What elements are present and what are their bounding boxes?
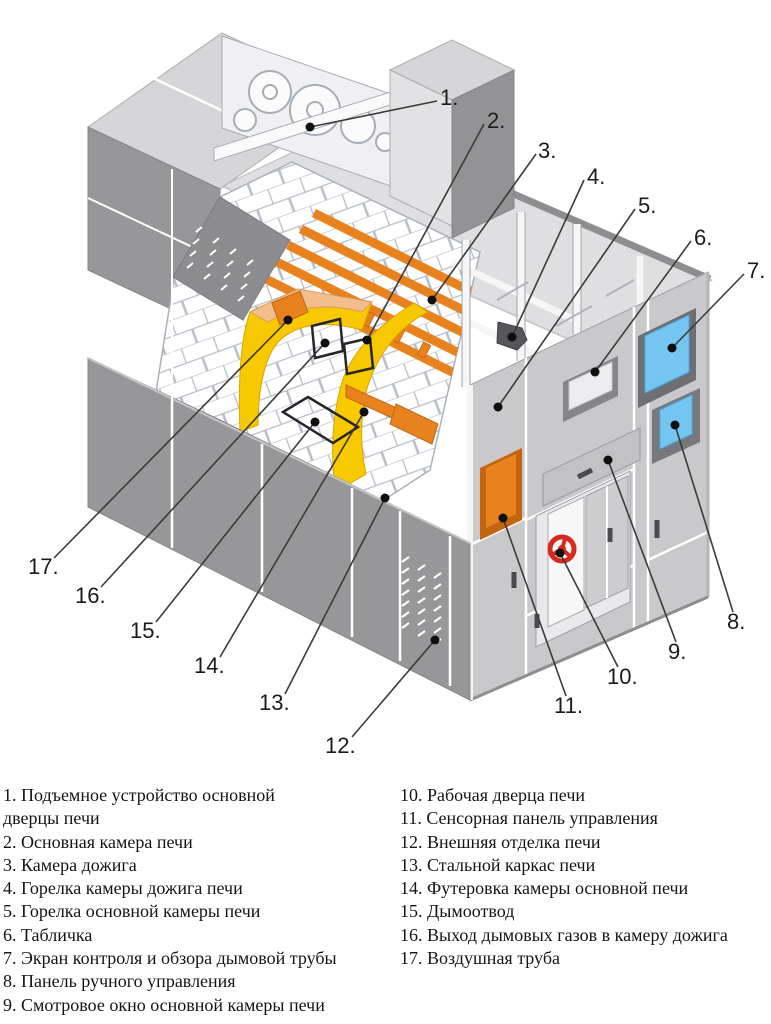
legend-item-2: 2. Основная камера печи xyxy=(3,831,400,854)
callout-number-14: 14. xyxy=(194,653,225,678)
callout-dot-16 xyxy=(321,339,330,348)
legend-item-8: 8. Панель ручного управления xyxy=(3,970,400,993)
legend: 1. Подъемное устройство основной дверцы … xyxy=(3,784,768,1017)
callout-number-3: 3. xyxy=(538,138,556,163)
callout-number-10: 10. xyxy=(607,664,638,689)
callout-dot-1 xyxy=(306,123,315,132)
callout-dot-13 xyxy=(381,494,390,503)
legend-item-10: 10. Рабочая дверца печи xyxy=(400,784,768,807)
legend-item-16: 16. Выход дымовых газов в камеру дожига xyxy=(400,924,768,947)
callout-number-17: 17. xyxy=(28,554,59,579)
callout-dot-4 xyxy=(508,333,517,342)
legend-item-17: 17. Воздушная труба xyxy=(400,947,768,970)
callout-number-9: 9. xyxy=(668,639,686,664)
legend-item-13: 13. Стальной каркас печи xyxy=(400,854,768,877)
callout-dot-12 xyxy=(431,636,440,645)
callout-dot-10 xyxy=(556,549,565,558)
legend-item-9: 9. Смотровое окно основной камеры печи xyxy=(3,994,400,1017)
legend-column-1: 1. Подъемное устройство основной дверцы … xyxy=(3,784,400,1017)
furnace-diagram-page: 1.2.3.4.5.6.7.8.9.10.11.12.13.14.15.16.1… xyxy=(0,0,771,1024)
callout-number-13: 13. xyxy=(259,690,290,715)
callout-dot-11 xyxy=(499,514,508,523)
callout-dot-3 xyxy=(428,296,437,305)
legend-item-7: 7. Экран контроля и обзора дымовой трубы xyxy=(3,947,400,970)
callout-dot-5 xyxy=(494,403,503,412)
legend-item-5: 5. Горелка основной камеры печи xyxy=(3,900,400,923)
callout-dot-14 xyxy=(360,408,369,417)
legend-item-12: 12. Внешняя отделка печи xyxy=(400,831,768,854)
callout-number-11: 11. xyxy=(554,693,583,718)
callout-number-1: 1. xyxy=(440,85,458,110)
callout-number-5: 5. xyxy=(638,193,656,218)
legend-item-6: 6. Табличка xyxy=(3,924,400,947)
callout-dot-7 xyxy=(668,344,677,353)
legend-item-3: 3. Камера дожига xyxy=(3,854,400,877)
callout-number-2: 2. xyxy=(487,108,505,133)
legend-column-2: 10. Рабочая дверца печи11. Сенсорная пан… xyxy=(400,784,768,1017)
legend-item-1: 1. Подъемное устройство основной дверцы … xyxy=(3,784,321,831)
callout-dot-9 xyxy=(604,456,613,465)
callout-number-7: 7. xyxy=(747,258,765,283)
callout-dot-8 xyxy=(671,421,680,430)
legend-item-14: 14. Футеровка камеры основной печи xyxy=(400,877,768,900)
callout-dot-15 xyxy=(311,418,320,427)
callout-number-15: 15. xyxy=(130,618,161,643)
legend-item-15: 15. Дымоотвод xyxy=(400,900,768,923)
callout-dot-6 xyxy=(591,368,600,377)
legend-item-4: 4. Горелка камеры дожига печи xyxy=(3,877,400,900)
callout-dot-17 xyxy=(284,316,293,325)
callout-number-12: 12. xyxy=(325,733,356,758)
callout-dot-2 xyxy=(363,336,372,345)
callout-number-8: 8. xyxy=(727,609,745,634)
legend-item-11: 11. Сенсорная панель управления xyxy=(400,807,768,830)
callout-number-16: 16. xyxy=(75,583,106,608)
callout-number-6: 6. xyxy=(694,225,712,250)
callout-number-4: 4. xyxy=(587,164,605,189)
